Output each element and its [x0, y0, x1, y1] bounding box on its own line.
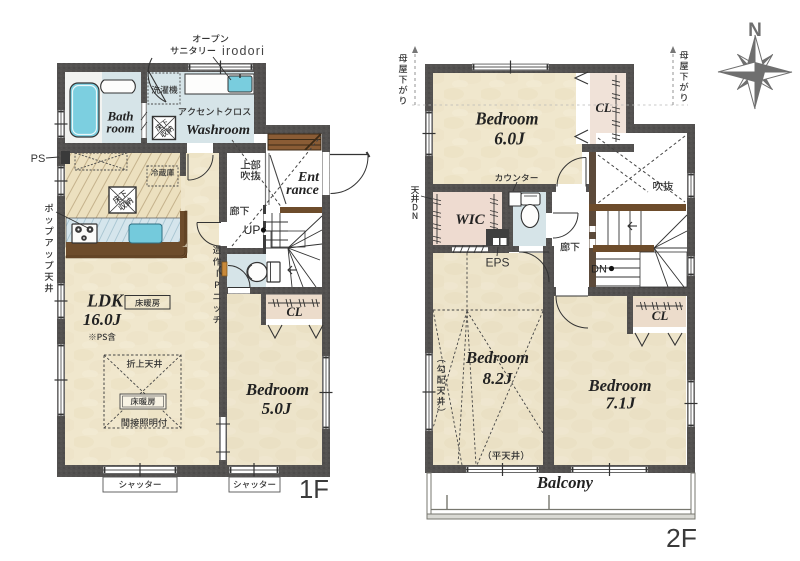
svg-text:6.0J: 6.0J: [494, 129, 526, 149]
svg-text:rance: rance: [286, 183, 319, 198]
svg-text:room: room: [106, 121, 134, 136]
svg-text:irodori: irodori: [222, 44, 265, 58]
svg-text:PS: PS: [31, 153, 46, 165]
svg-text:WIC: WIC: [455, 212, 485, 228]
svg-text:2F: 2F: [666, 523, 697, 553]
svg-text:LDK: LDK: [86, 291, 125, 311]
svg-text:CL: CL: [596, 101, 612, 115]
svg-text:DN: DN: [591, 264, 607, 276]
svg-text:7.1J: 7.1J: [606, 394, 636, 413]
svg-text:Washroom: Washroom: [186, 123, 250, 138]
svg-text:EPS: EPS: [485, 256, 509, 270]
svg-text:Bedroom: Bedroom: [465, 348, 529, 367]
svg-text:8.2J: 8.2J: [483, 369, 513, 388]
svg-text:Bedroom: Bedroom: [588, 376, 652, 395]
svg-text:Balcony: Balcony: [536, 473, 593, 492]
svg-text:CL: CL: [287, 305, 303, 319]
svg-text:16.0J: 16.0J: [83, 310, 122, 329]
svg-text:CL: CL: [652, 308, 669, 323]
svg-text:1F: 1F: [299, 474, 329, 504]
svg-text:Bedroom: Bedroom: [245, 380, 309, 399]
svg-text:N: N: [748, 20, 762, 41]
svg-text:5.0J: 5.0J: [262, 399, 292, 418]
svg-text:Bedroom: Bedroom: [475, 109, 539, 129]
svg-text:UP: UP: [244, 223, 261, 237]
